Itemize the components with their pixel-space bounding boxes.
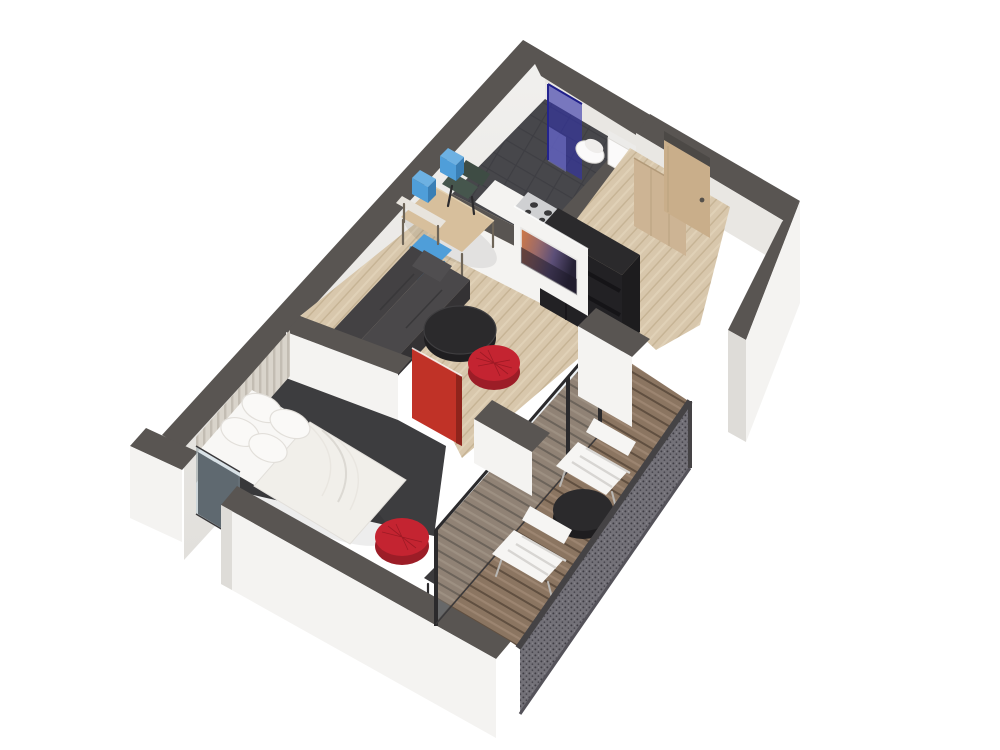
- floor-plan-svg: [0, 0, 1000, 750]
- door-handle: [700, 198, 705, 203]
- front-wall-face-edge: [221, 505, 232, 590]
- red-ottoman-living: [468, 345, 520, 390]
- red-ottoman-bedroom: [375, 518, 429, 565]
- entry-wall-face-end: [728, 330, 746, 442]
- floor-plan-render: [0, 0, 1000, 750]
